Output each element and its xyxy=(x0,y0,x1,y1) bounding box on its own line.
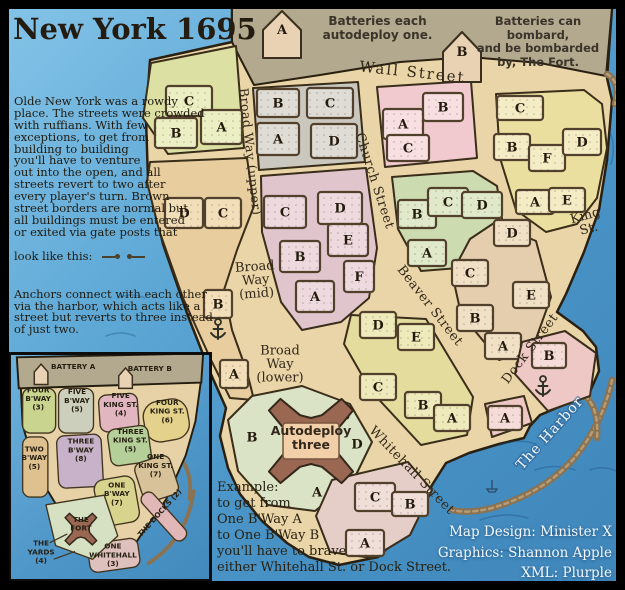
block-letter-five-bway-B: B xyxy=(273,97,284,112)
block-letter-four-kingst-E: E xyxy=(562,194,572,209)
block-letter-three-bway-E: E xyxy=(343,234,353,249)
inset-label: BATTERY B xyxy=(128,364,173,373)
battery-bombard-note: Batteries can bombard, and be bombarded … xyxy=(468,15,608,69)
gate-post-left-icon xyxy=(102,254,120,259)
inset-label: THEFORT xyxy=(70,515,91,533)
block-letter-one-bway-D: D xyxy=(372,319,383,334)
page-title: New York 1695 xyxy=(13,12,257,46)
block-letter-three-bway-B: B xyxy=(295,250,306,265)
block-letter-one-kingst-C: C xyxy=(465,267,475,282)
block-letter-three-bway-F: F xyxy=(354,270,364,285)
territory-five-kingst: BAC xyxy=(377,81,477,167)
block-letter-four-kingst-A: A xyxy=(529,196,541,211)
game-map-artwork: CBABACDBACCBFDAEDCBACDBEAFBCDADCEBADECBA… xyxy=(0,0,625,590)
block-letter-three-bway-D: D xyxy=(334,202,345,217)
inset-map-svg: BATTERY ABATTERY BFOURB'WAY(3)FIVEB'WAY(… xyxy=(11,355,209,579)
block-letter-one-bway-C: C xyxy=(373,381,383,396)
battery-letter-A: A xyxy=(276,23,288,38)
block-letter-one-kingst-D: D xyxy=(506,227,517,242)
block-letter-four-kingst-F: F xyxy=(542,152,552,167)
block-letter-one-kingst-A: A xyxy=(497,340,509,355)
block-letter-four-kingst-B: B xyxy=(507,141,518,156)
block-letter-three-kingst-D: D xyxy=(476,199,487,214)
block-letter-docks-b-B: B xyxy=(544,349,555,364)
water-squiggle xyxy=(610,132,613,164)
inset-yards-pointer-line xyxy=(54,551,75,559)
block-letter-five-bway-C: C xyxy=(325,97,335,112)
inset-label: BATTERY A xyxy=(51,362,96,371)
intro-paragraph-anchors: Anchors connect with each other via the … xyxy=(14,289,232,337)
block-letter-one-kingst-B: B xyxy=(470,312,481,327)
block-letter-three-bway-A: A xyxy=(309,290,321,305)
water-squiggle xyxy=(590,468,616,471)
block-letter-one-bway-A: A xyxy=(446,412,458,427)
block-letter-three-bway-C: C xyxy=(280,206,290,221)
credits: Map Design: Minister X Graphics: Shannon… xyxy=(372,522,612,584)
battery-autodeploy-note: Batteries each autodeploy one. xyxy=(295,14,460,42)
gate-example-line: look like this: xyxy=(14,251,232,263)
territory-five-bway: BACD xyxy=(253,82,365,170)
block-letter-one-kingst-E: E xyxy=(526,289,536,304)
block-letter-three-kingst-B: B xyxy=(412,208,423,223)
block-letter-one-bway-E: E xyxy=(411,331,421,346)
battery-letter-B: B xyxy=(457,45,468,60)
inset-territory-map: BATTERY ABATTERY BFOURB'WAY(3)FIVEB'WAY(… xyxy=(8,352,212,582)
block-letter-yards-D: D xyxy=(351,438,362,453)
block-letter-five-kingst-B: B xyxy=(438,101,449,116)
intro-paragraph-rules: Olde New York was a rowdy place. The str… xyxy=(14,96,232,239)
block-letter-four-kingst-D: D xyxy=(576,136,587,151)
block-letter-four-kingst-C: C xyxy=(515,102,525,117)
block-letter-three-kingst-A: A xyxy=(421,247,433,262)
block-letter-yards-B: B xyxy=(247,431,258,446)
block-letter-five-kingst-A: A xyxy=(397,118,409,133)
block-letter-three-kingst-C: C xyxy=(443,196,453,211)
gate-post-right-icon xyxy=(127,254,145,259)
block-letter-five-bway-D: D xyxy=(328,135,339,150)
block-letter-five-kingst-C: C xyxy=(403,142,413,157)
gate-line-label: look like this: xyxy=(14,251,92,263)
gate-post-icon xyxy=(102,254,145,259)
block-letter-one-bway-B: B xyxy=(418,399,429,414)
block-letter-five-bway-A: A xyxy=(272,133,284,148)
block-letter-docks-a-A: A xyxy=(499,412,511,427)
